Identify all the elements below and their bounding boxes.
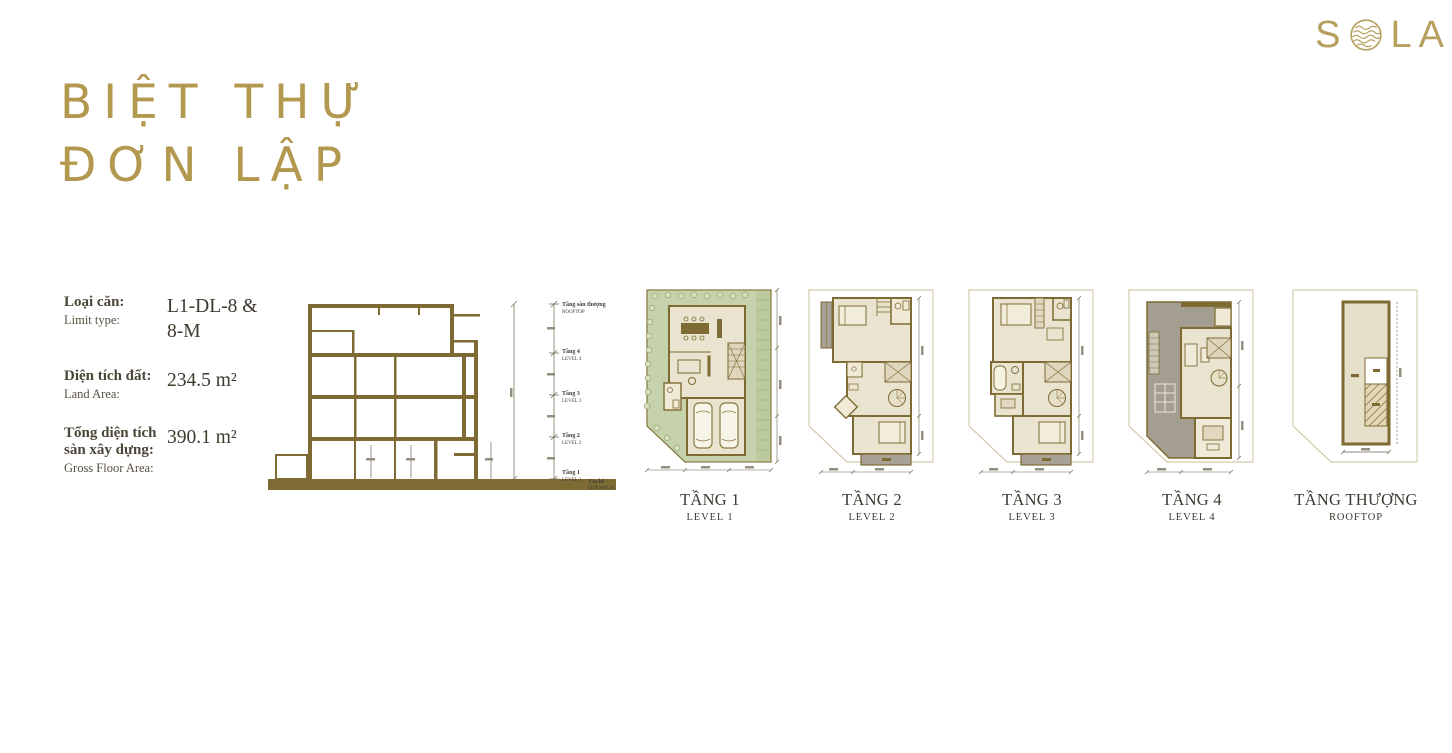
section-label-sidewalk-vi: Vỉa hè xyxy=(588,479,605,485)
page-title: BIỆT THỰ ĐƠN LẬP xyxy=(60,72,372,198)
bathroom-mid xyxy=(991,362,1023,394)
spiral-stair xyxy=(1049,390,1066,407)
section-label-sidewalk-en: SIDEWALK xyxy=(588,486,614,491)
level-2-plan-drawing xyxy=(797,286,947,482)
bottom-room xyxy=(1195,418,1231,458)
section-structure xyxy=(268,304,616,490)
bed-3 xyxy=(1001,304,1031,325)
logo-letter-a: A xyxy=(1419,16,1444,54)
roof-edge xyxy=(1181,302,1231,307)
balcony xyxy=(861,454,911,465)
gfa-label-en: Gross Floor Area: xyxy=(64,461,167,476)
planting-strip xyxy=(756,291,770,461)
floorplan-level-1: TẦNG 1 LEVEL 1 xyxy=(635,286,785,523)
section-level-labels: Tầng sân thượng ROOFTOP Tầng 4 LEVEL 4 T… xyxy=(562,301,614,491)
rooftop-plan-drawing xyxy=(1281,286,1431,482)
bed-2 xyxy=(879,422,905,443)
section-label-l3-en: LEVEL 3 xyxy=(562,399,582,404)
land-area-label-vi: Diện tích đất: xyxy=(64,368,167,385)
sola-logo: S L A xyxy=(1308,10,1444,60)
bathroom xyxy=(664,383,681,410)
hatched-skylight xyxy=(1365,384,1387,426)
plan-sub-rooftop: ROOFTOP xyxy=(1281,512,1431,523)
plan-sub-level-3: LEVEL 3 xyxy=(957,512,1107,523)
spiral-stair xyxy=(889,390,906,407)
land-area-label-en: Land Area: xyxy=(64,387,167,402)
wc xyxy=(847,362,862,377)
elevator-shaft xyxy=(1045,362,1071,382)
section-label-l4-vi: Tầng 4 xyxy=(562,348,580,355)
section-label-l2-vi: Tầng 2 xyxy=(562,432,580,439)
section-label-l2-en: LEVEL 2 xyxy=(562,441,582,446)
master-bed xyxy=(839,306,866,325)
walkin-closet xyxy=(995,394,1023,416)
stair-bulkhead xyxy=(1365,358,1387,384)
info-row-gross-floor-area: Tổng diện tích sàn xây dựng: Gross Floor… xyxy=(64,425,284,477)
louver-screen xyxy=(1149,332,1159,374)
entry-stoop xyxy=(276,455,307,479)
level-3-plan-drawing xyxy=(957,286,1107,482)
plan-name-level-2: TẦNG 2 xyxy=(797,490,947,510)
floorplan-level-3: TẦNG 3 LEVEL 3 xyxy=(957,286,1107,523)
floorplan-level-2: TẦNG 2 LEVEL 2 xyxy=(797,286,947,523)
plan-sub-level-4: LEVEL 4 xyxy=(1117,512,1267,523)
info-label: Diện tích đất: Land Area: xyxy=(64,368,167,402)
floorplan-level-4: TẦNG 4 LEVEL 4 xyxy=(1117,286,1267,523)
wardrobe xyxy=(1035,298,1044,328)
gfa-label-vi: Tổng diện tích sàn xây dựng: xyxy=(64,425,167,460)
elevator-shaft xyxy=(885,362,911,382)
unit-info-panel: Loại căn: Limit type: L1-DL-8 & 8-M Diện… xyxy=(64,294,284,499)
section-label-rooftop-vi: Tầng sân thượng xyxy=(562,301,606,308)
logo-letter-s: S xyxy=(1315,16,1340,54)
level-4-plan-drawing xyxy=(1117,286,1267,482)
plan-name-level-4: TẦNG 4 xyxy=(1117,490,1267,510)
gfa-value: 390.1 m² xyxy=(167,425,267,477)
top-corner-room xyxy=(1215,308,1231,326)
page-title-line-2: ĐƠN LẬP xyxy=(60,135,372,198)
info-label: Tổng diện tích sàn xây dựng: Gross Floor… xyxy=(64,425,167,477)
brochure-page: S L A BIỆT THỰ ĐƠN LẬP Loại căn: xyxy=(0,0,1452,753)
plan-name-level-1: TẦNG 1 xyxy=(635,490,785,510)
info-row-land-area: Diện tích đất: Land Area: 234.5 m² xyxy=(64,368,284,402)
bed-4 xyxy=(1039,422,1065,443)
floorplan-rooftop: TẦNG THƯỢNG ROOFTOP xyxy=(1281,286,1431,523)
unit-type-label-en: Limit type: xyxy=(64,313,167,328)
plan-name-level-3: TẦNG 3 xyxy=(957,490,1107,510)
unit-type-value: L1-DL-8 & 8-M xyxy=(167,294,267,345)
bathroom xyxy=(891,298,911,324)
land-area-value: 234.5 m² xyxy=(167,368,267,402)
plan-name-rooftop: TẦNG THƯỢNG xyxy=(1281,490,1431,510)
page-title-line-1: BIỆT THỰ xyxy=(60,72,372,135)
section-label-l1-en: LEVEL 1 xyxy=(562,478,582,483)
plan-sub-level-2: LEVEL 2 xyxy=(797,512,947,523)
level-1-plan-drawing xyxy=(635,286,785,482)
balcony xyxy=(1021,454,1071,465)
logo-o-wave-icon xyxy=(1348,17,1384,53)
section-label-l4-en: LEVEL 4 xyxy=(562,357,582,362)
roof-vent xyxy=(1351,374,1359,377)
logo-letter-l: L xyxy=(1391,16,1412,54)
info-label: Loại căn: Limit type: xyxy=(64,294,167,345)
info-row-unit-type: Loại căn: Limit type: L1-DL-8 & 8-M xyxy=(64,294,284,345)
section-label-l3-vi: Tầng 3 xyxy=(562,390,580,397)
section-label-rooftop-en: ROOFTOP xyxy=(562,310,585,315)
elevator-shaft xyxy=(1207,338,1231,358)
car-1 xyxy=(694,403,712,448)
staircase xyxy=(728,343,745,379)
plan-sub-level-1: LEVEL 1 xyxy=(635,512,785,523)
building-section-drawing: Tầng sân thượng ROOFTOP Tầng 4 LEVEL 4 T… xyxy=(266,290,618,496)
car-2 xyxy=(720,403,738,448)
section-label-l1-vi: Tầng 1 xyxy=(562,469,580,476)
unit-type-label-vi: Loại căn: xyxy=(64,294,167,311)
spiral-stair xyxy=(1211,370,1227,386)
